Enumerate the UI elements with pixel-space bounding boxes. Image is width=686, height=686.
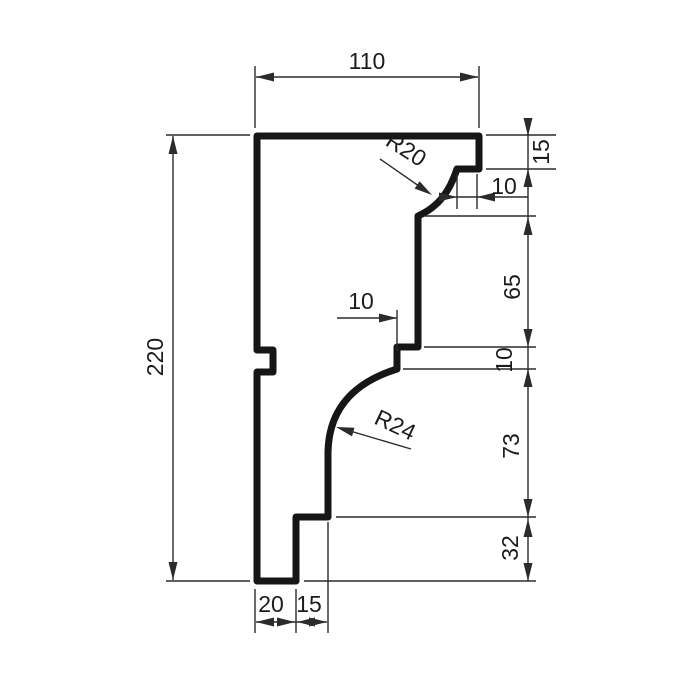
dim-left-height: 220 — [142, 338, 168, 376]
technical-drawing-svg: 110 220 15 65 10 73 32 — [0, 0, 686, 686]
drawing-canvas: 110 220 15 65 10 73 32 — [0, 0, 686, 686]
dim-right-step-depth: 10 — [491, 173, 517, 199]
dim-right-small-step: 10 — [491, 347, 517, 373]
arrowhead — [524, 329, 533, 347]
arrowhead — [524, 369, 533, 387]
arrowhead — [524, 519, 533, 537]
arrowhead — [256, 73, 274, 82]
left-height-dimension: 220 — [142, 135, 250, 581]
dim-right-foot-height: 32 — [497, 535, 523, 561]
arrowhead — [524, 499, 533, 517]
dim-bottom-right-width: 15 — [296, 591, 322, 617]
arrowhead — [169, 562, 178, 580]
arrowhead — [309, 618, 327, 627]
arrowhead — [460, 73, 478, 82]
dim-right-lower-face: 73 — [498, 433, 524, 459]
dim-bottom-left-width: 20 — [258, 591, 284, 617]
arrowhead — [524, 118, 533, 136]
dim-top-width: 110 — [349, 48, 386, 74]
arrowhead — [524, 169, 533, 187]
arrowhead — [336, 427, 355, 436]
arrowhead — [524, 217, 533, 235]
arrowhead — [524, 563, 533, 581]
top-width-dimension: 110 — [255, 48, 479, 128]
arrowhead — [169, 136, 178, 154]
radius-bottom-callout: R24 — [336, 404, 420, 449]
arrowhead — [277, 618, 295, 627]
molding-profile-outline — [257, 136, 479, 581]
dim-mid-step-depth: 10 — [348, 288, 374, 314]
arrowhead — [256, 618, 274, 627]
dim-right-upper-face: 65 — [499, 274, 525, 300]
dim-right-step-height: 15 — [528, 139, 554, 165]
